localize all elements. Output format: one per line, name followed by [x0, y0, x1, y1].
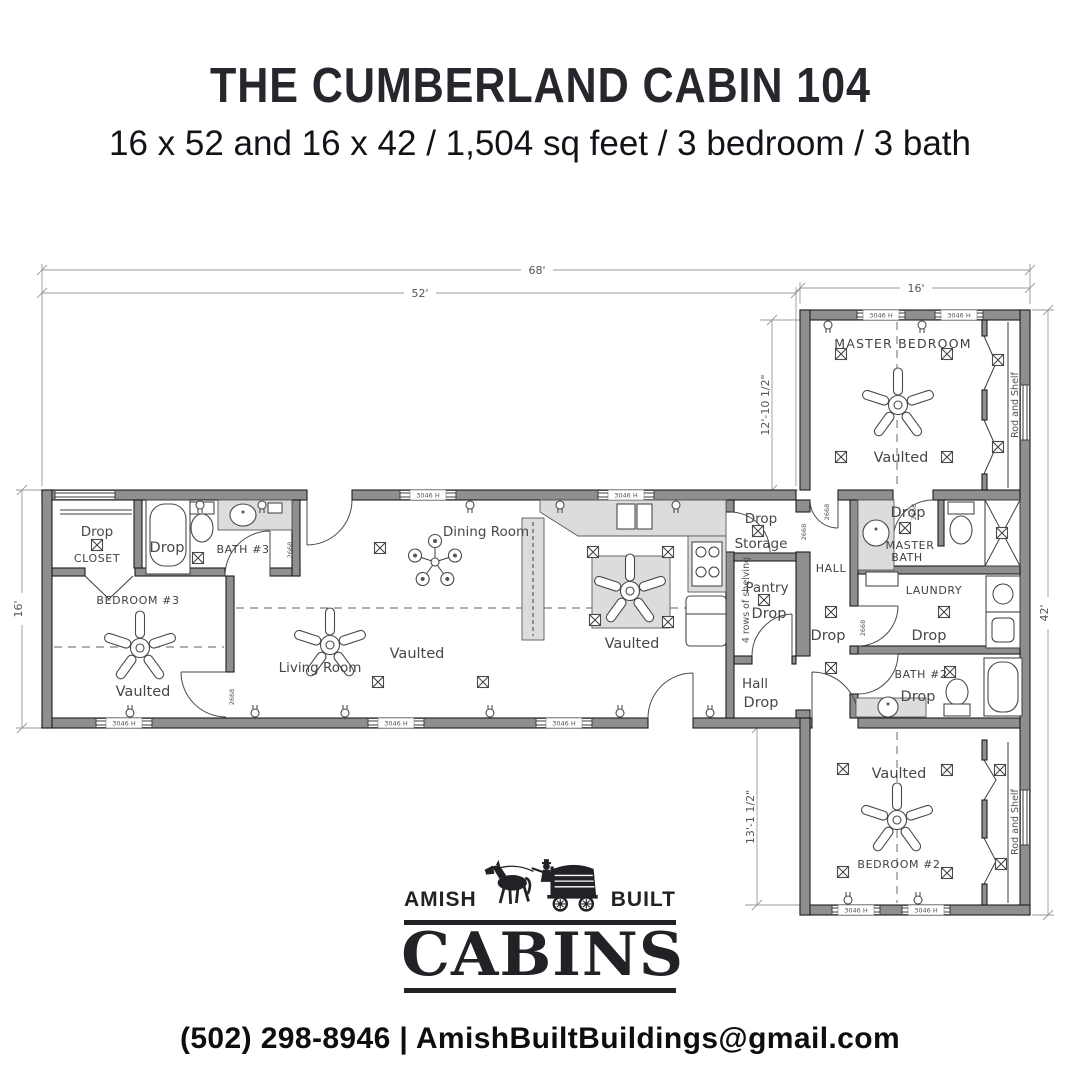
- dim-wing-length: 42': [1038, 604, 1051, 621]
- horse-wagon-icon: [483, 854, 605, 918]
- label-hall-wing-drop: Drop: [811, 628, 846, 644]
- label-living-room: Living Room: [279, 660, 362, 676]
- label-bath2: BATH #2: [894, 668, 947, 681]
- page-subtitle: 16 x 52 and 16 x 42 / 1,504 sq feet / 3 …: [0, 124, 1080, 164]
- logo: AMISH: [404, 854, 676, 993]
- label-laundry-drop: Drop: [912, 628, 947, 644]
- svg-text:3046 H: 3046 H: [552, 720, 576, 728]
- room-labels: Drop CLOSET Drop BATH #3 BEDROOM #3 Vaul…: [74, 336, 1021, 871]
- label-closet-drop: Drop: [81, 524, 113, 540]
- chandelier-icon: [407, 535, 463, 589]
- label-storage-drop: Drop: [745, 511, 777, 527]
- label-kitchen-vaulted: Vaulted: [605, 636, 660, 652]
- label-bath3-drop: Drop: [150, 540, 185, 556]
- logo-brand: CABINS: [401, 925, 678, 986]
- label-bedroom3: BEDROOM #3: [96, 594, 179, 607]
- label-bath2-drop: Drop: [901, 689, 936, 705]
- bath2-fixtures: [856, 658, 1022, 717]
- label-master-closet: Rod and Shelf: [1010, 371, 1021, 437]
- label-master-vaulted: Vaulted: [874, 450, 929, 466]
- label-bedroom3-vaulted: Vaulted: [116, 684, 171, 700]
- label-dining-room: Dining Room: [443, 524, 529, 540]
- svg-text:3046 H: 3046 H: [947, 312, 971, 320]
- dim-main-width: 52': [411, 287, 428, 300]
- logo-top-row: AMISH: [404, 854, 676, 918]
- dim-overall-width: 68': [528, 264, 545, 277]
- contact-line: (502) 298-8946 | AmishBuiltBuildings@gma…: [0, 1022, 1080, 1056]
- dim-wing-width: 16': [907, 282, 924, 295]
- svg-text:2668: 2668: [823, 504, 831, 521]
- svg-text:3046 H: 3046 H: [869, 312, 893, 320]
- label-bedroom2-closet: Rod and Shelf: [1010, 788, 1021, 854]
- flyer-page: THE CUMBERLAND CABIN 104 16 x 52 and 16 …: [0, 0, 1080, 1080]
- label-closet: CLOSET: [74, 552, 120, 565]
- logo-word-amish: AMISH: [404, 888, 477, 918]
- svg-text:3046 H: 3046 H: [614, 492, 638, 500]
- label-storage: Storage: [735, 536, 788, 552]
- label-master-bath-2: BATH: [891, 551, 923, 564]
- svg-text:2668: 2668: [286, 542, 294, 559]
- label-bath3: BATH #3: [216, 543, 269, 556]
- label-bedroom2-vaulted: Vaulted: [872, 766, 927, 782]
- label-hall-main-drop: Drop: [744, 695, 779, 711]
- dim-main-depth: 16': [12, 600, 25, 617]
- svg-text:2668: 2668: [800, 524, 808, 541]
- page-title: THE CUMBERLAND CABIN 104: [210, 58, 871, 114]
- svg-text:3046 H: 3046 H: [914, 907, 938, 915]
- svg-text:2668: 2668: [228, 689, 236, 706]
- floor-plan: 68' 52' 16' 12'-10 1/2" 16' 42' 13'-1 1/…: [0, 248, 1080, 948]
- label-master-bath-drop: Drop: [891, 505, 926, 521]
- label-pantry-drop: Drop: [752, 606, 787, 622]
- label-living-vaulted: Vaulted: [390, 646, 445, 662]
- dim-bedroom2-depth: 13'-1 1/2": [744, 790, 757, 844]
- svg-text:3046 H: 3046 H: [384, 720, 408, 728]
- label-pantry-shelving: 4 rows of shelving: [741, 557, 752, 643]
- label-laundry: LAUNDRY: [906, 584, 963, 597]
- svg-text:3046 H: 3046 H: [844, 907, 868, 915]
- header: THE CUMBERLAND CABIN 104 16 x 52 and 16 …: [0, 58, 1080, 164]
- dim-master-depth: 12'-10 1/2": [759, 374, 772, 435]
- svg-text:2668: 2668: [859, 620, 867, 637]
- svg-text:3046 H: 3046 H: [416, 492, 440, 500]
- label-hall-wing: HALL: [816, 562, 847, 575]
- kitchen-counters: [522, 500, 726, 646]
- svg-text:3046 H: 3046 H: [112, 720, 136, 728]
- logo-word-built: BUILT: [611, 888, 676, 918]
- label-hall-main: Hall: [742, 676, 768, 692]
- label-bedroom2: BEDROOM #2: [857, 858, 940, 871]
- label-master-bedroom: MASTER BEDROOM: [834, 336, 972, 351]
